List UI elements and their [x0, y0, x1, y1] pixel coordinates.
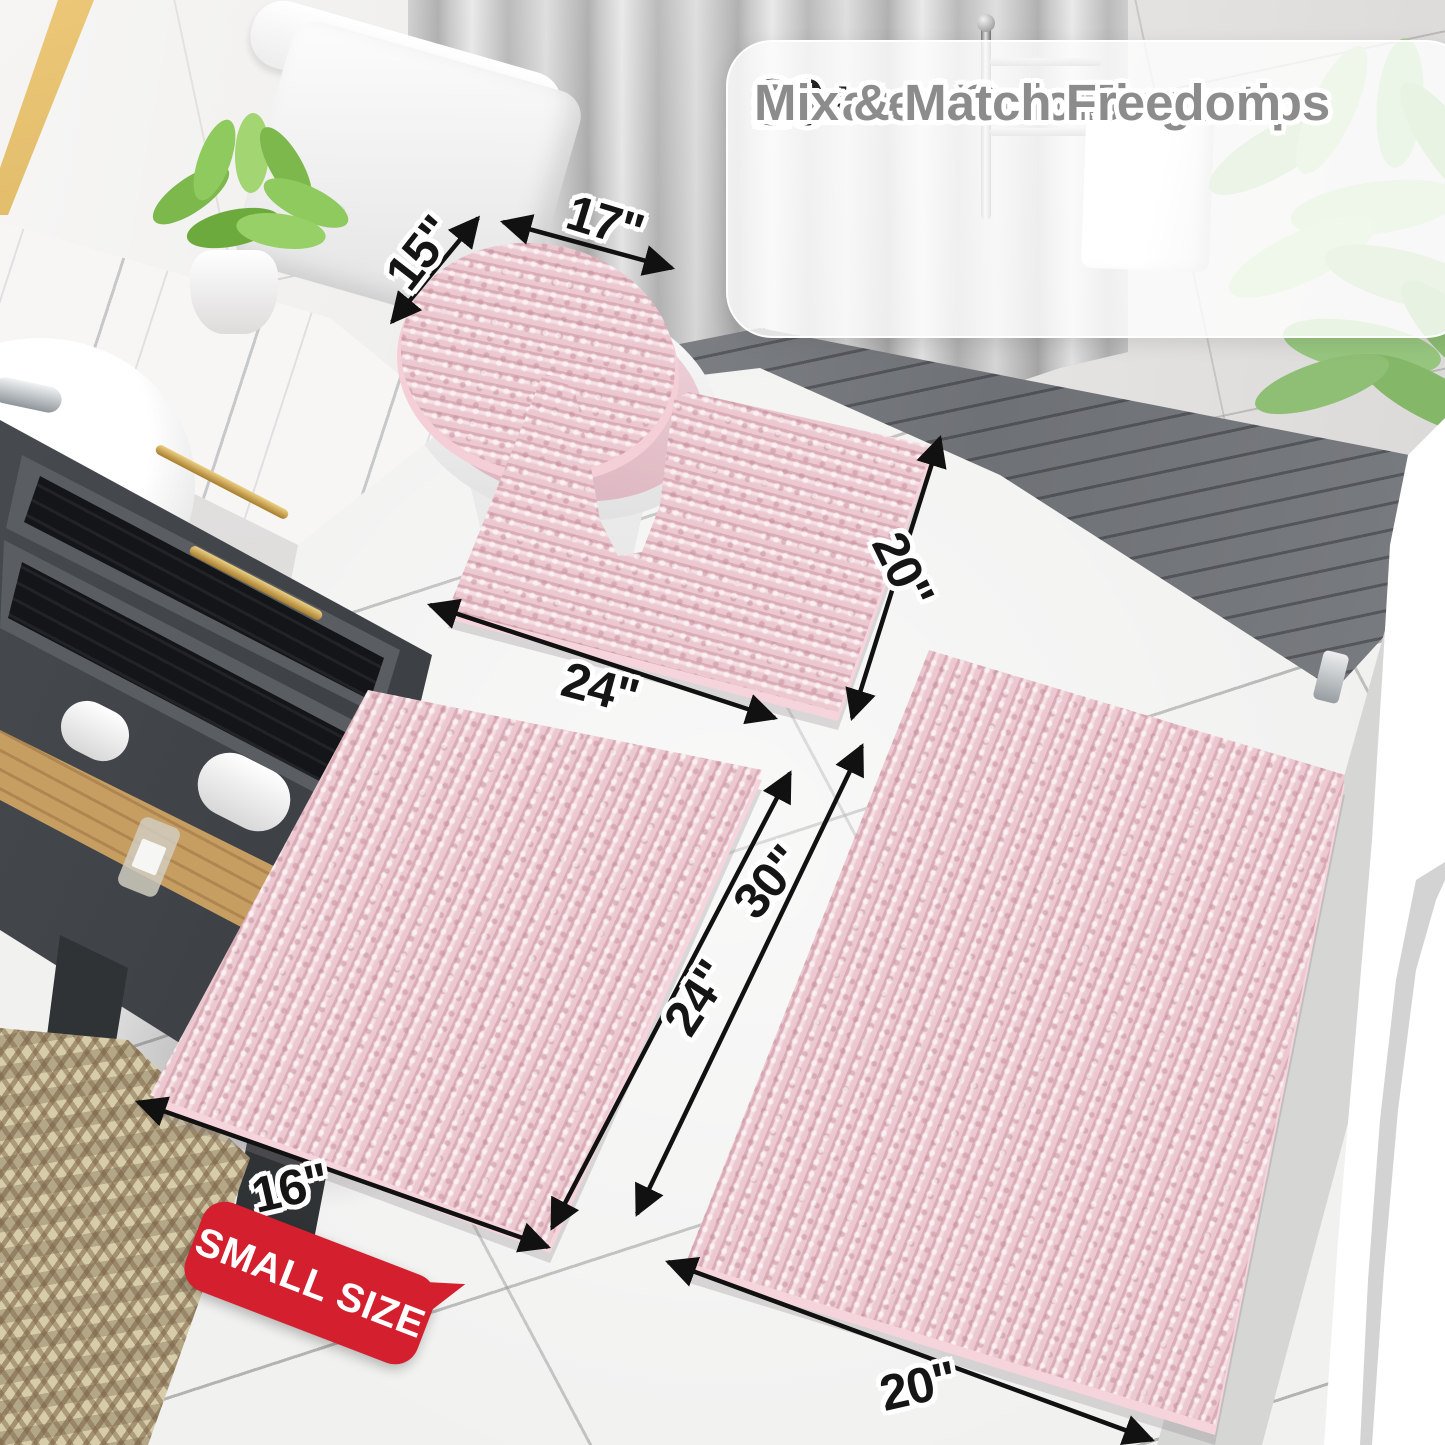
arrow-large-rug-length — [637, 746, 862, 1214]
bathroom-product-scene: ✓ 20+ Sizes at Your Fingertips ✓ 30+ Cur… — [0, 0, 1445, 1445]
